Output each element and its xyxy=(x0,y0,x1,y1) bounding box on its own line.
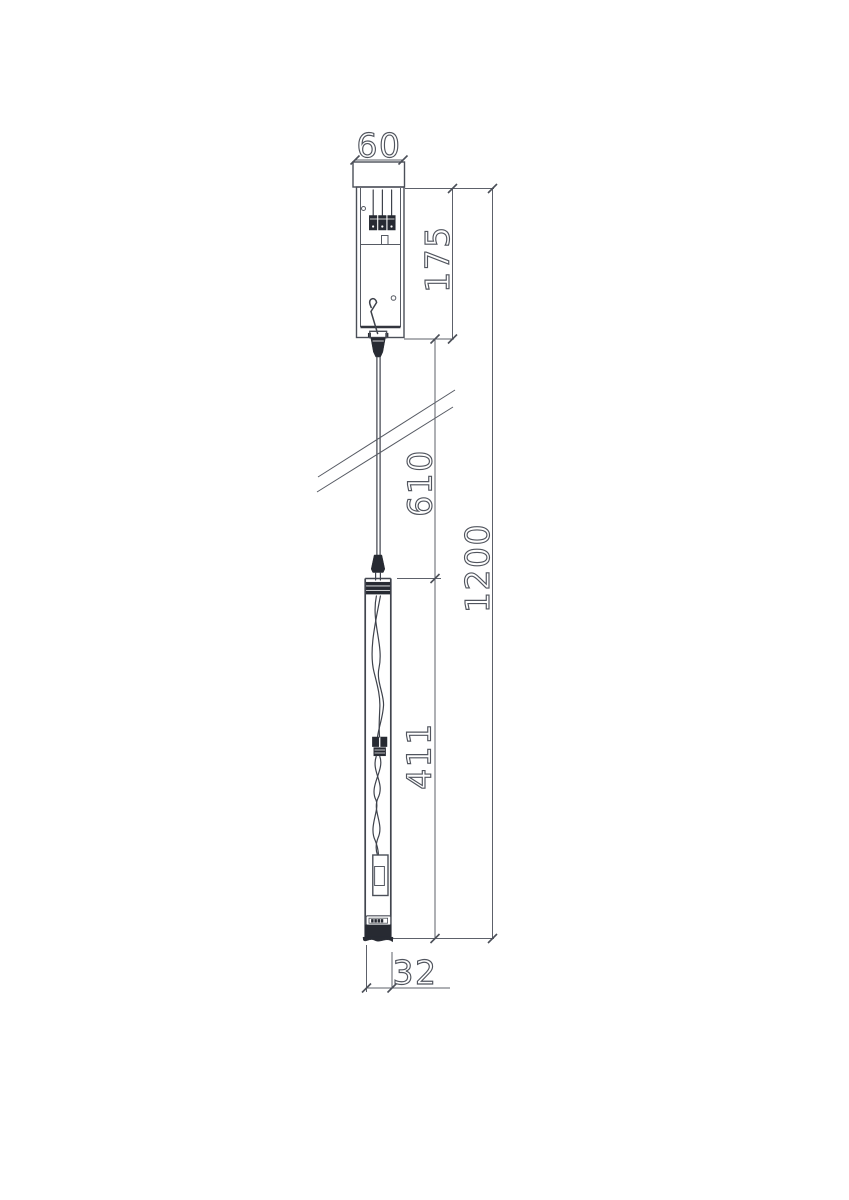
dim-label-1200: 1200 xyxy=(458,523,497,613)
tube-top-bands xyxy=(366,582,390,594)
dimension-tube-diameter: 32 xyxy=(362,945,450,993)
dimension-suspension-and-body: 610 411 xyxy=(400,335,440,944)
end-cap xyxy=(363,937,393,942)
wire-connector xyxy=(372,737,387,756)
internal-wires-upper xyxy=(372,596,384,737)
pendant-light-technical-drawing: 60 175 610 411 12 xyxy=(0,0,849,1200)
ceiling-canopy xyxy=(353,162,405,357)
diffuser-band xyxy=(365,925,391,937)
canopy-mounting-plate xyxy=(353,162,405,187)
led-module xyxy=(366,916,391,925)
dimension-overall-height: 1200 xyxy=(458,184,497,943)
cable-gland xyxy=(368,331,388,357)
strain-relief-cone xyxy=(371,555,385,580)
dim-label-60: 60 xyxy=(357,126,402,165)
drawing-canvas: 60 175 610 411 12 xyxy=(0,0,849,1200)
dim-label-175: 175 xyxy=(418,225,457,293)
internal-wires-twisted xyxy=(373,757,381,856)
led-driver xyxy=(373,855,388,896)
terminal-block xyxy=(369,190,395,230)
mounting-bracket xyxy=(361,236,400,245)
dim-label-32: 32 xyxy=(393,953,438,992)
dimension-canopy-height: 175 xyxy=(418,184,457,344)
canopy-screw-left xyxy=(362,207,366,211)
canopy-screw-right xyxy=(391,296,396,301)
dim-label-411: 411 xyxy=(400,722,439,790)
dim-label-610: 610 xyxy=(401,449,440,517)
canopy-body xyxy=(357,187,405,338)
pendant-tube xyxy=(363,555,393,942)
dimension-canopy-width: 60 xyxy=(351,126,408,165)
suspension-cable xyxy=(377,357,380,556)
